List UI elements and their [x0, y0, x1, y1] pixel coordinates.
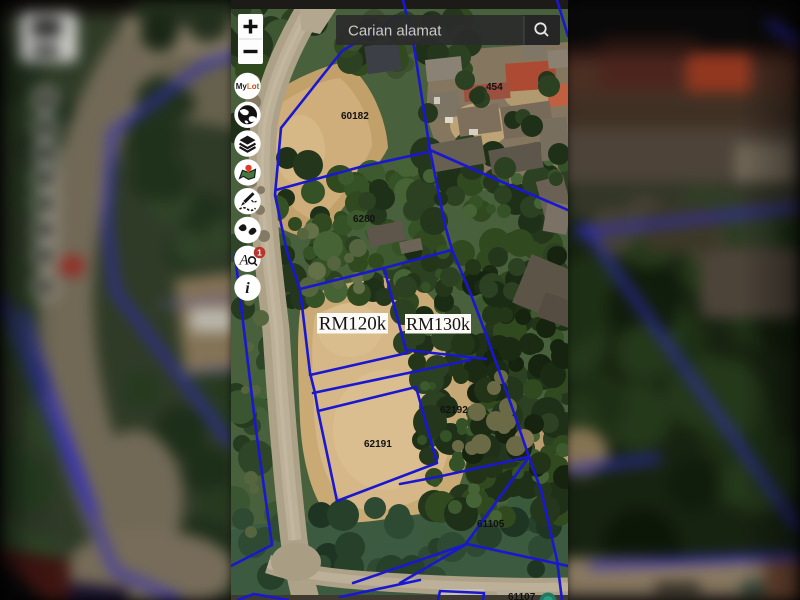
svg-text:61105: 61105 [477, 519, 505, 530]
svg-text:RM120k: RM120k [319, 314, 387, 335]
svg-text:62192: 62192 [440, 405, 468, 416]
svg-text:6280: 6280 [353, 214, 376, 225]
svg-text:i: i [245, 280, 250, 297]
svg-text:A: A [238, 252, 249, 268]
svg-text:62191: 62191 [364, 439, 392, 450]
svg-text:1: 1 [257, 248, 262, 258]
svg-text:60182: 60182 [341, 111, 369, 122]
svg-text:454: 454 [486, 82, 503, 93]
svg-text:MyLot: MyLot [236, 82, 260, 91]
svg-text:Carian alamat: Carian alamat [348, 23, 442, 40]
svg-text:RM130k: RM130k [406, 314, 470, 334]
svg-text:61107: 61107 [508, 592, 536, 600]
